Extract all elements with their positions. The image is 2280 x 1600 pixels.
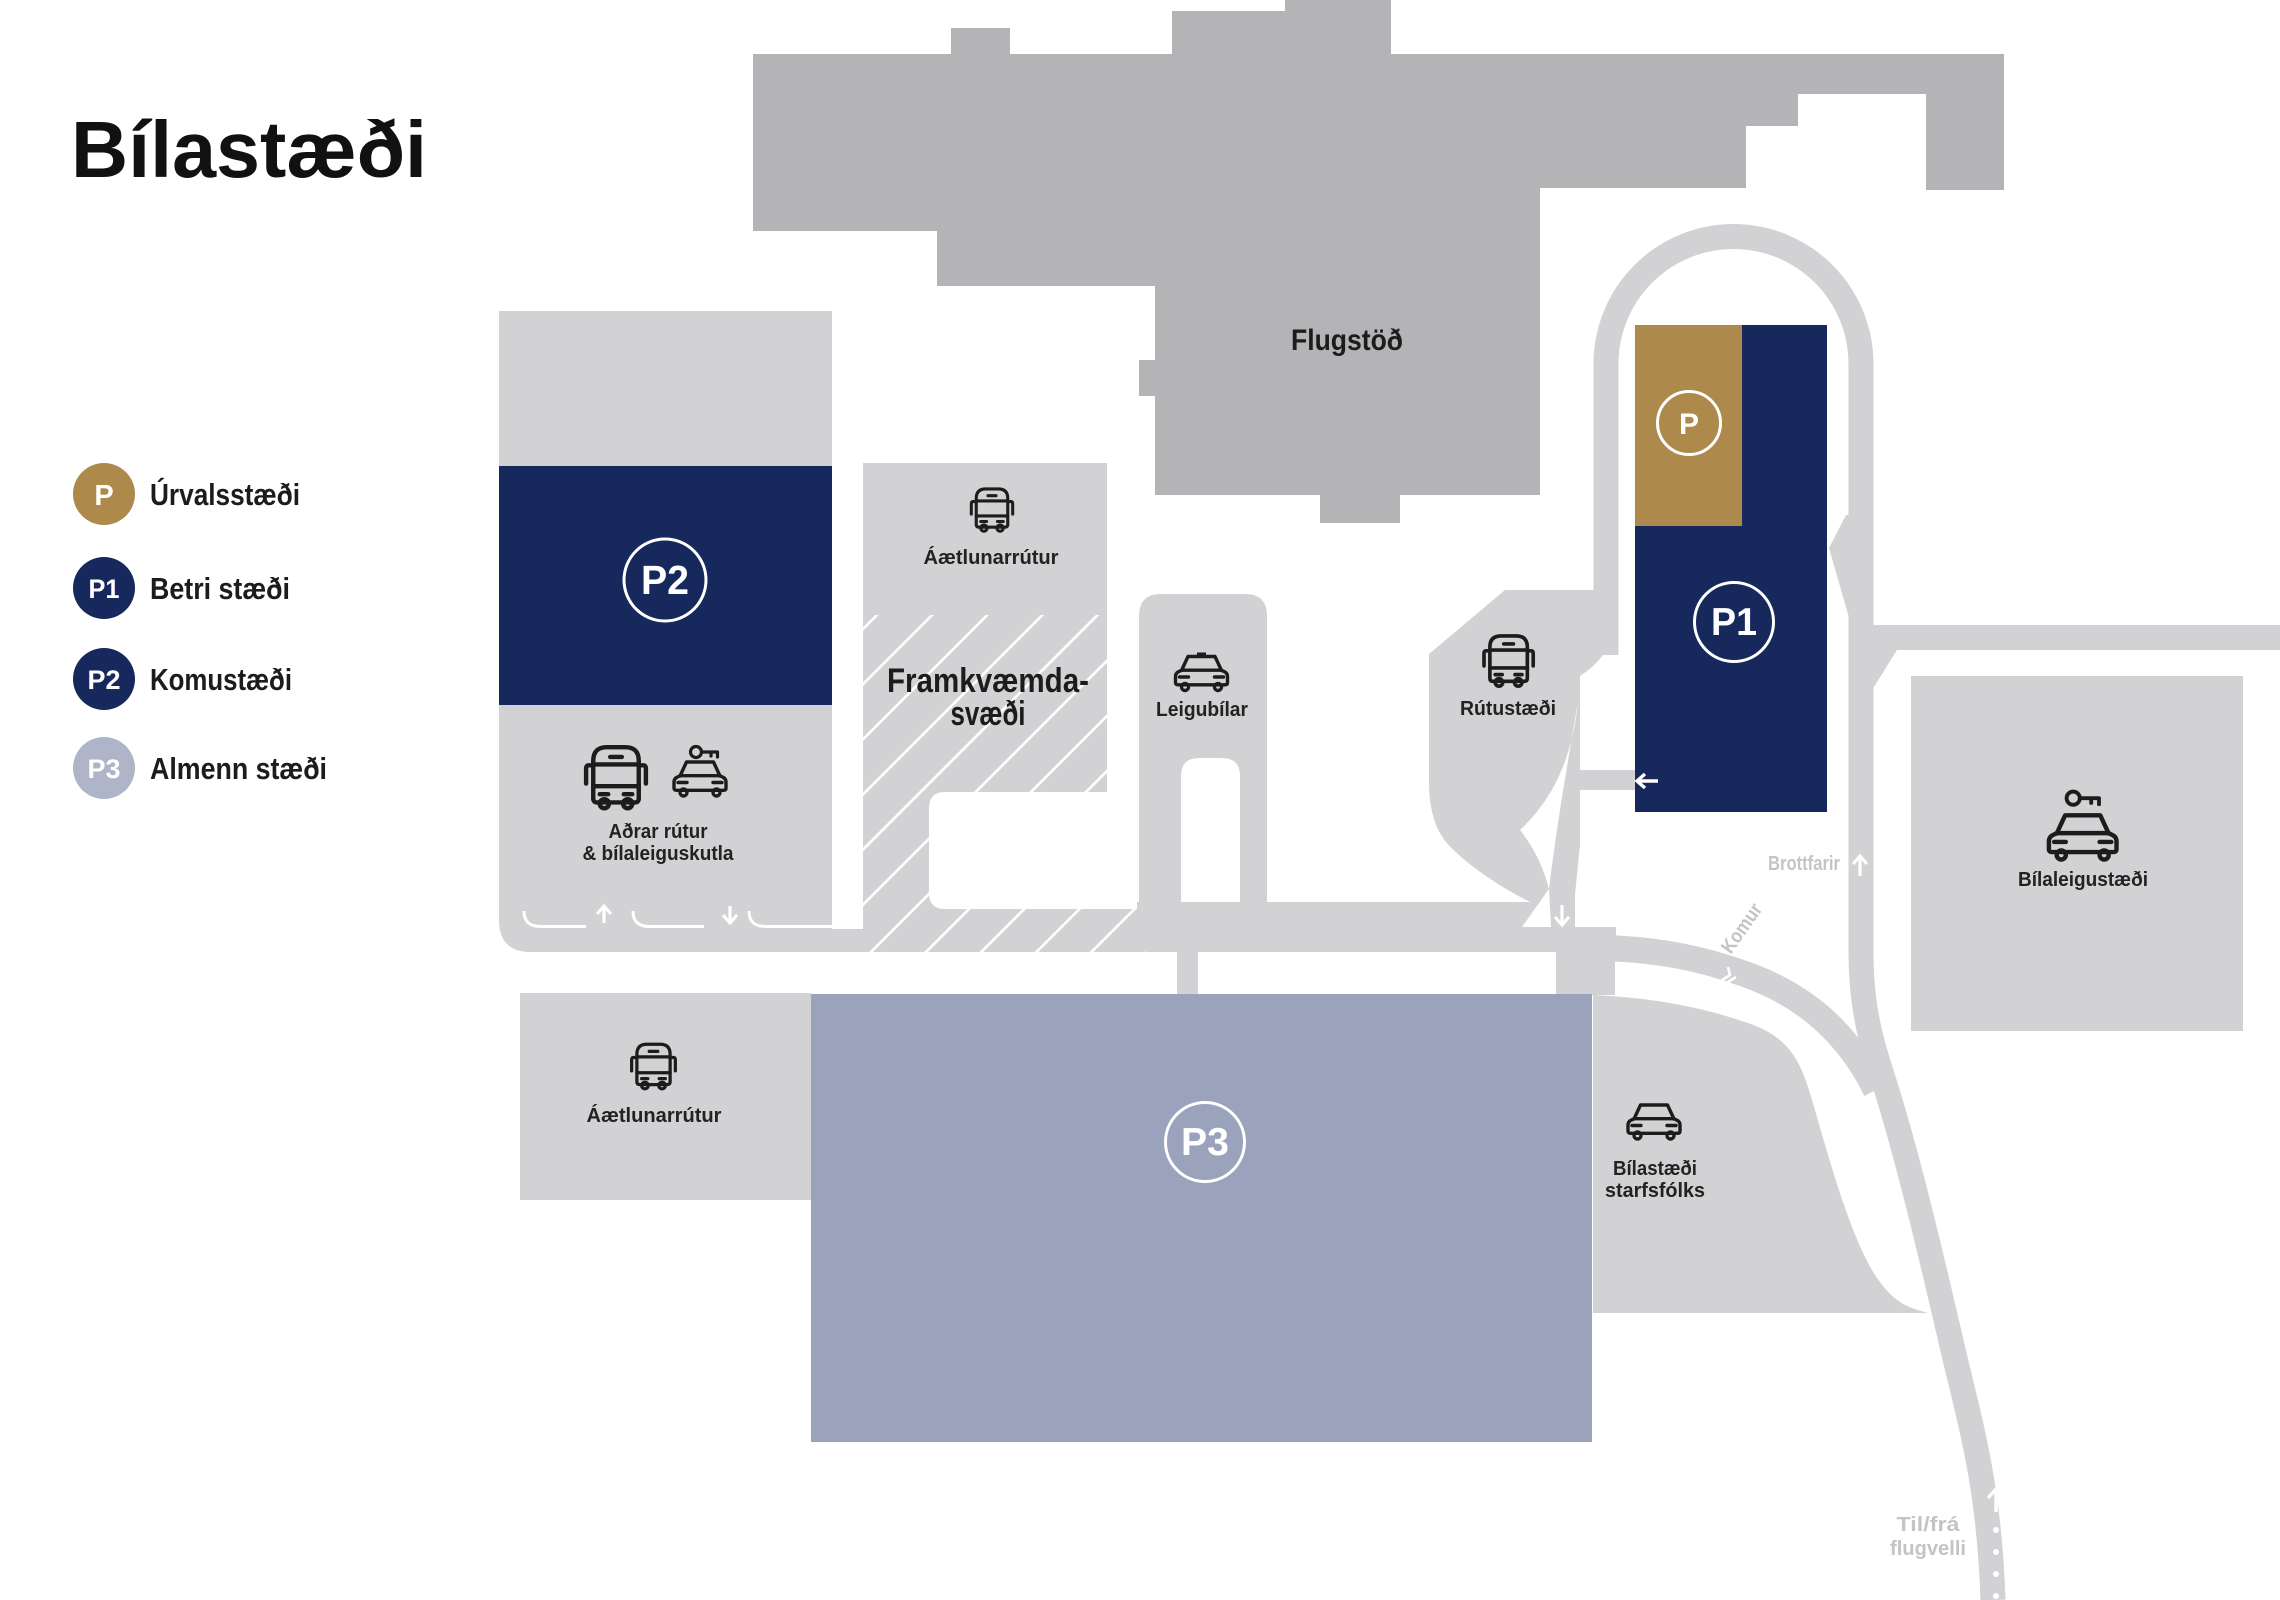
svg-text:P1: P1 [1711, 601, 1757, 644]
svg-text:Betri stæði: Betri stæði [150, 571, 290, 606]
svg-text:flugvelli: flugvelli [1890, 1538, 1966, 1560]
svg-text:P2: P2 [641, 557, 689, 603]
svg-text:Til/frá: Til/frá [1897, 1514, 1961, 1536]
svg-text:Rútustæði: Rútustæði [1460, 698, 1556, 720]
svg-text:Leigubílar: Leigubílar [1156, 699, 1248, 721]
svg-text:Brottfarir: Brottfarir [1768, 853, 1840, 875]
svg-text:Aðrar rútur: Aðrar rútur [609, 821, 708, 843]
svg-text:Komustæði: Komustæði [150, 662, 292, 697]
svg-text:Áætlunarrútur: Áætlunarrútur [924, 546, 1059, 569]
svg-text:Flugstöð: Flugstöð [1291, 324, 1403, 357]
svg-text:starfsfólks: starfsfólks [1605, 1180, 1705, 1202]
svg-text:P: P [1679, 408, 1699, 441]
svg-text:P: P [94, 480, 113, 512]
svg-text:P3: P3 [88, 754, 121, 784]
svg-text:P3: P3 [1181, 1121, 1229, 1164]
svg-text:& bílaleiguskutla: & bílaleiguskutla [583, 843, 735, 865]
svg-text:Bílaleigustæði: Bílaleigustæði [2018, 869, 2148, 891]
svg-text:Bílastæði: Bílastæði [71, 105, 427, 194]
svg-text:P2: P2 [88, 665, 121, 695]
svg-text:Bílastæði: Bílastæði [1613, 1158, 1697, 1180]
svg-text:Almenn stæði: Almenn stæði [150, 751, 327, 786]
svg-text:Úrvalsstæði: Úrvalsstæði [150, 476, 300, 512]
svg-text:svæði: svæði [951, 695, 1026, 733]
svg-text:P1: P1 [89, 574, 120, 604]
svg-text:Áætlunarrútur: Áætlunarrútur [587, 1104, 722, 1127]
